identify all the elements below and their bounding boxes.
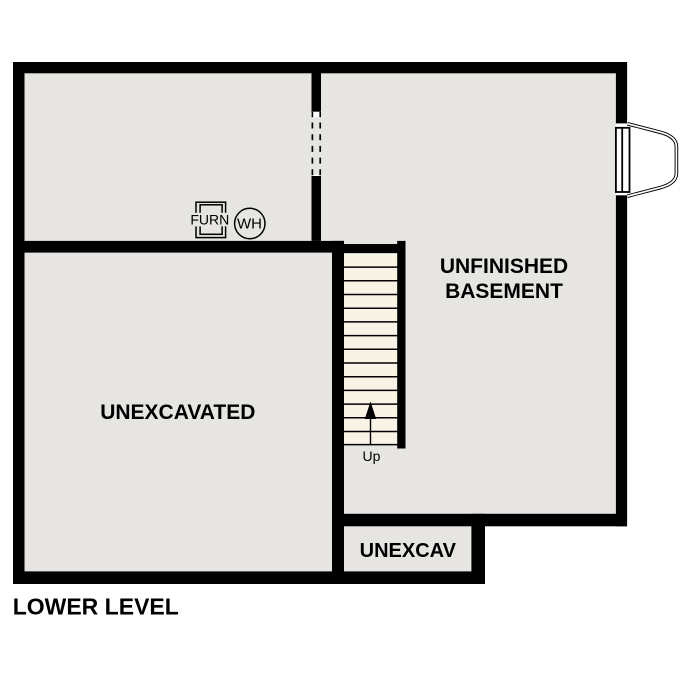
- svg-text:UNEXCAVATED: UNEXCAVATED: [100, 401, 255, 424]
- svg-text:Up: Up: [363, 448, 381, 464]
- svg-text:UNEXCAV: UNEXCAV: [360, 540, 457, 562]
- svg-text:UNFINISHED: UNFINISHED: [440, 255, 568, 278]
- svg-text:FURN: FURN: [190, 211, 229, 227]
- svg-text:LOWER LEVEL: LOWER LEVEL: [13, 594, 179, 620]
- svg-text:BASEMENT: BASEMENT: [445, 280, 563, 303]
- svg-text:WH: WH: [237, 216, 262, 233]
